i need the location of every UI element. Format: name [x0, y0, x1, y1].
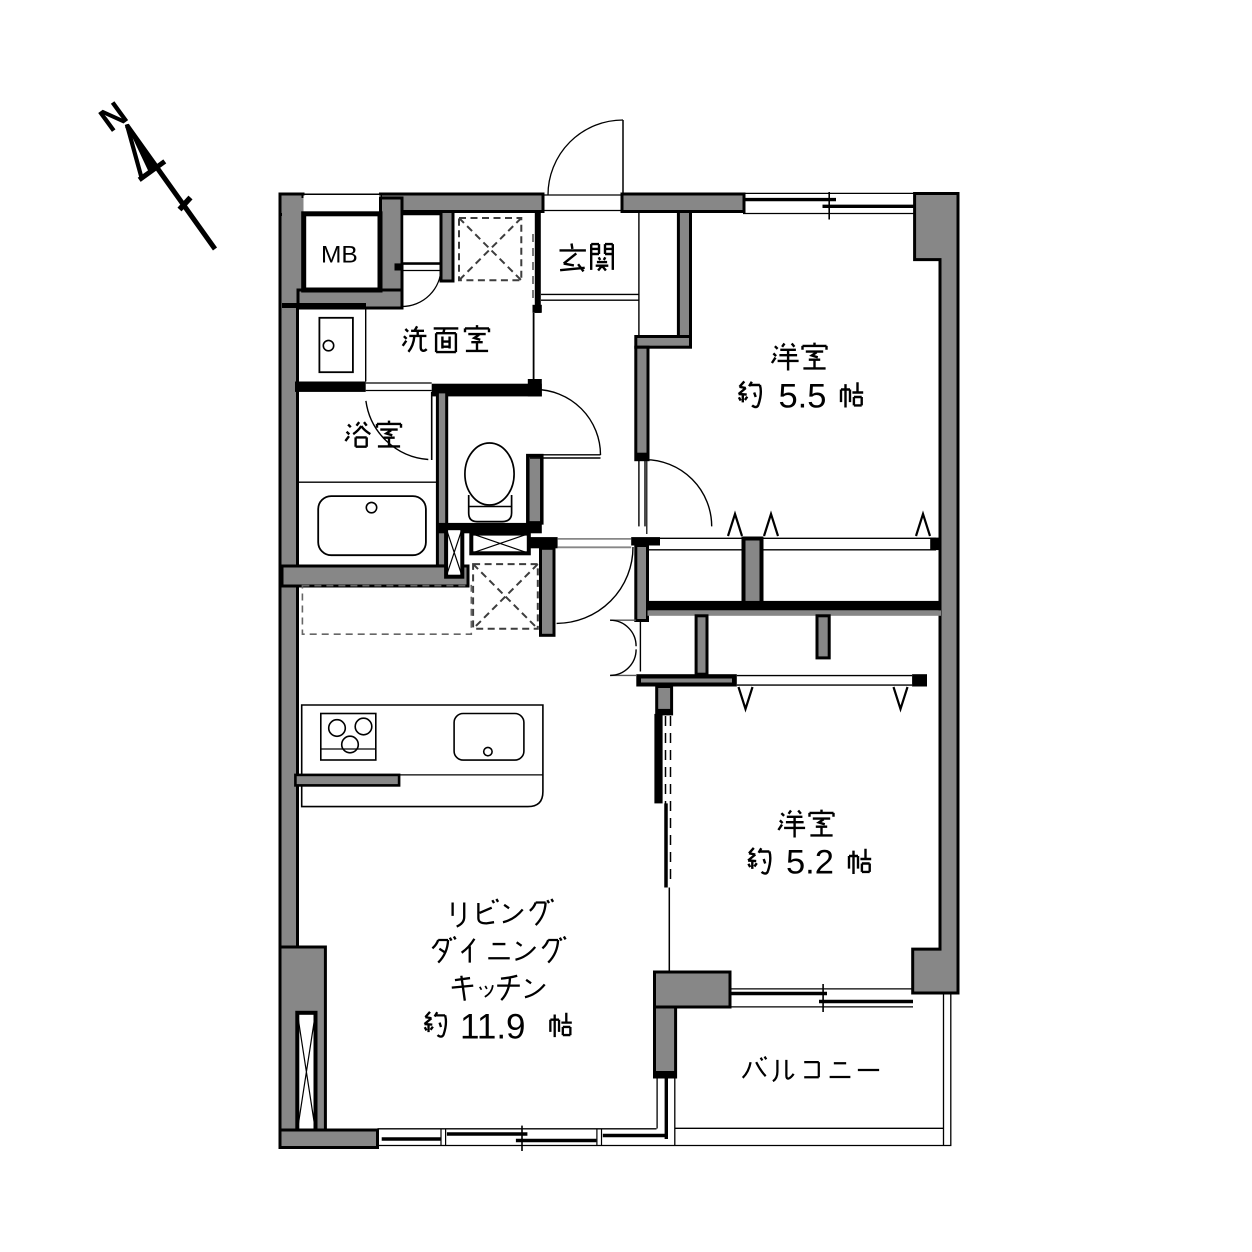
- svg-text:5.5: 5.5: [779, 377, 827, 415]
- svg-text:11.9: 11.9: [460, 1008, 526, 1047]
- svg-text:5.2: 5.2: [786, 844, 834, 882]
- svg-text:MB: MB: [321, 242, 358, 269]
